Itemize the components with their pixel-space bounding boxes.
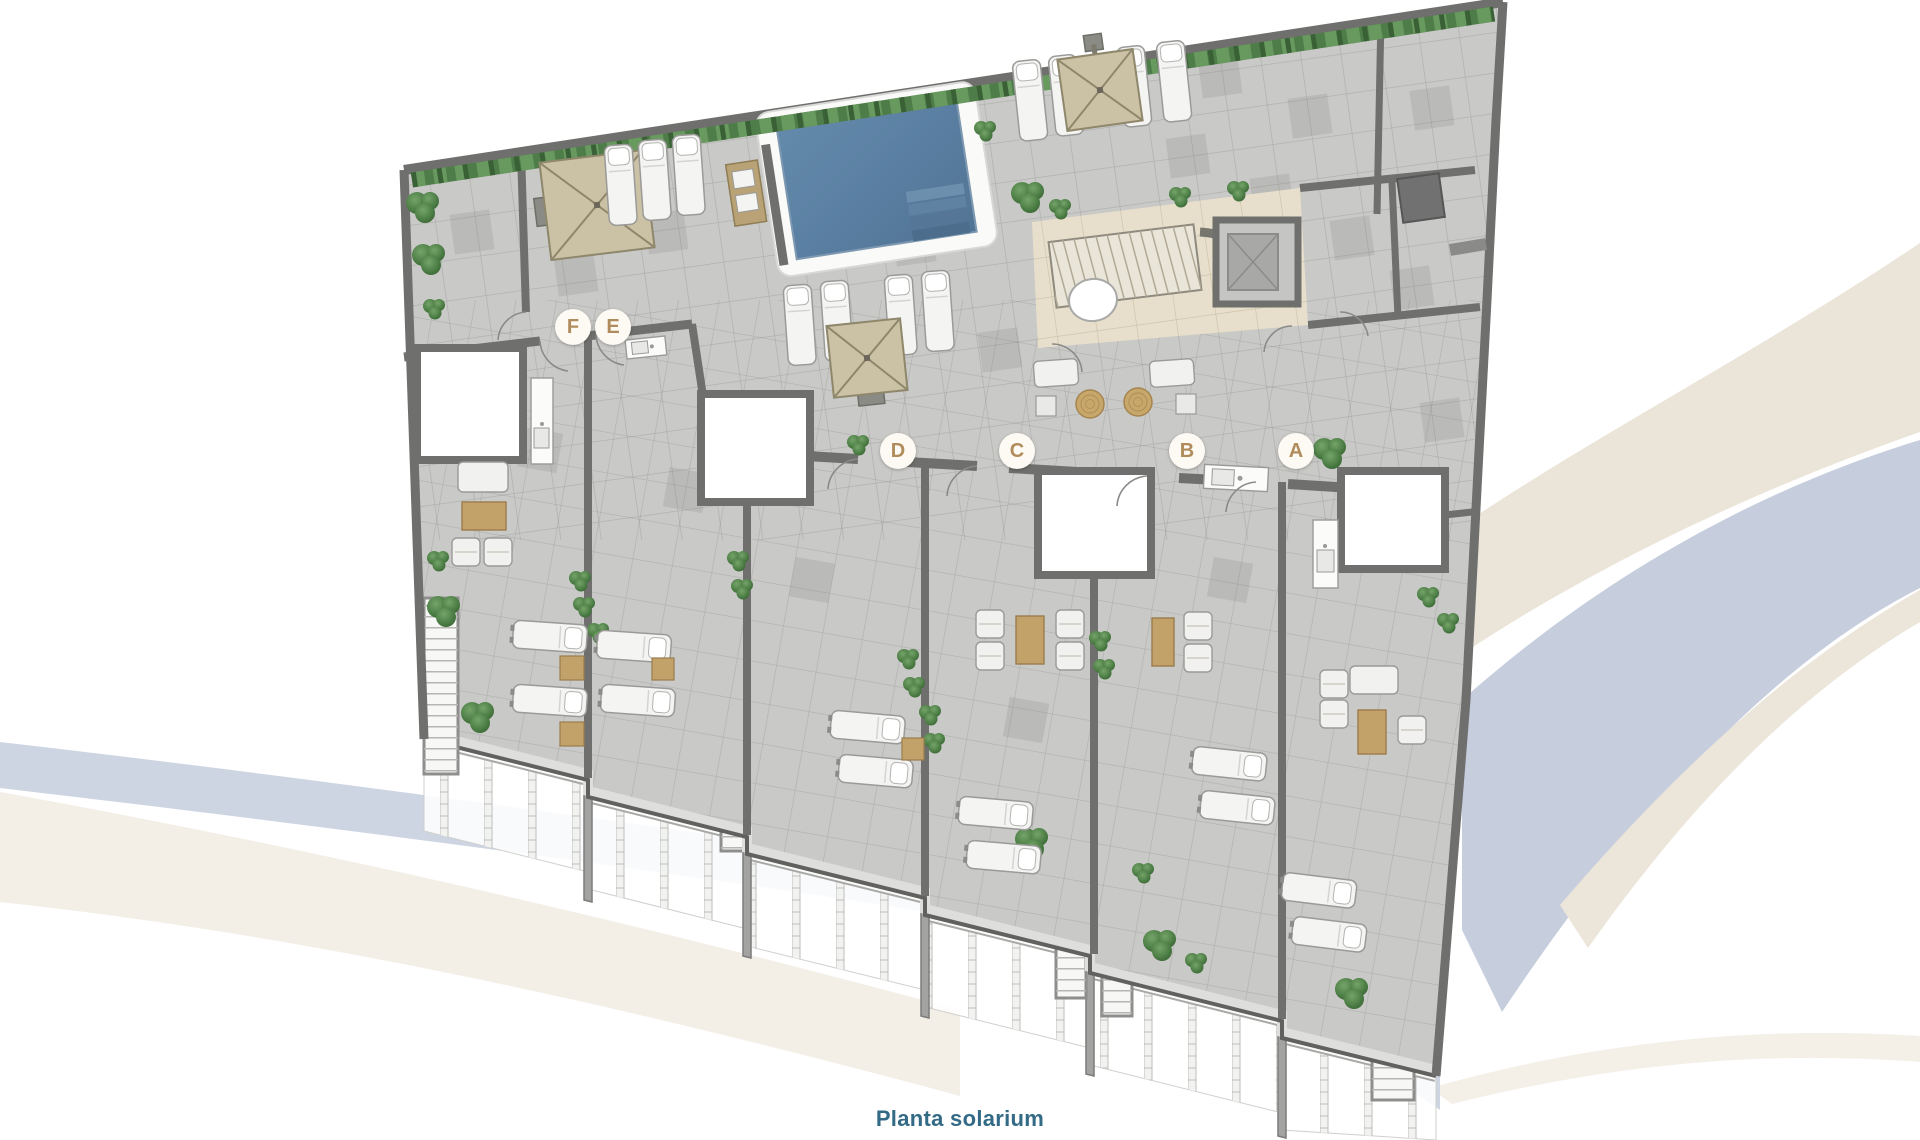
elevator <box>1216 220 1298 304</box>
side-table <box>560 722 584 746</box>
plan-caption: Planta solarium <box>0 1106 1920 1132</box>
skylight-void <box>701 394 810 502</box>
kitchenette <box>1313 520 1338 588</box>
service-shaft <box>1397 173 1445 222</box>
bench <box>1149 358 1195 387</box>
bench <box>1033 358 1079 387</box>
unit-letter: B <box>1180 441 1194 461</box>
sofa <box>458 462 508 492</box>
skylight-void <box>1341 471 1445 569</box>
kitchenette <box>1203 464 1268 491</box>
side-table <box>1176 394 1196 414</box>
skylight-void <box>417 348 523 460</box>
unit-marker-b: B <box>1169 433 1205 469</box>
unit-letter: C <box>1010 441 1024 461</box>
coffee-table <box>1152 618 1174 666</box>
unit-letter: A <box>1289 441 1303 461</box>
unit-marker-c: C <box>999 433 1035 469</box>
solarium-floor-plan: A B C D E F Planta solarium <box>0 0 1920 1140</box>
unit-marker-a: A <box>1278 433 1314 469</box>
sofa <box>1350 666 1398 694</box>
floor-plan-drawing <box>0 0 1920 1140</box>
coffee-table <box>1358 710 1386 754</box>
unit-marker-f: F <box>555 309 591 345</box>
skylight-void <box>1038 471 1151 575</box>
side-table <box>1036 396 1056 416</box>
unit-letter: E <box>606 317 619 337</box>
unit-marker-d: D <box>880 433 916 469</box>
coffee-table <box>462 502 506 530</box>
kitchenette <box>625 336 667 359</box>
coffee-table <box>1016 616 1044 664</box>
unit-letter: D <box>891 441 905 461</box>
unit-letter: F <box>567 317 579 337</box>
unit-marker-e: E <box>595 309 631 345</box>
swoosh-beige-bottom <box>1430 1033 1920 1104</box>
kitchenette <box>531 378 553 464</box>
side-table <box>652 658 674 680</box>
side-table <box>902 738 924 760</box>
side-table <box>560 656 584 680</box>
umbrella <box>1055 29 1143 131</box>
